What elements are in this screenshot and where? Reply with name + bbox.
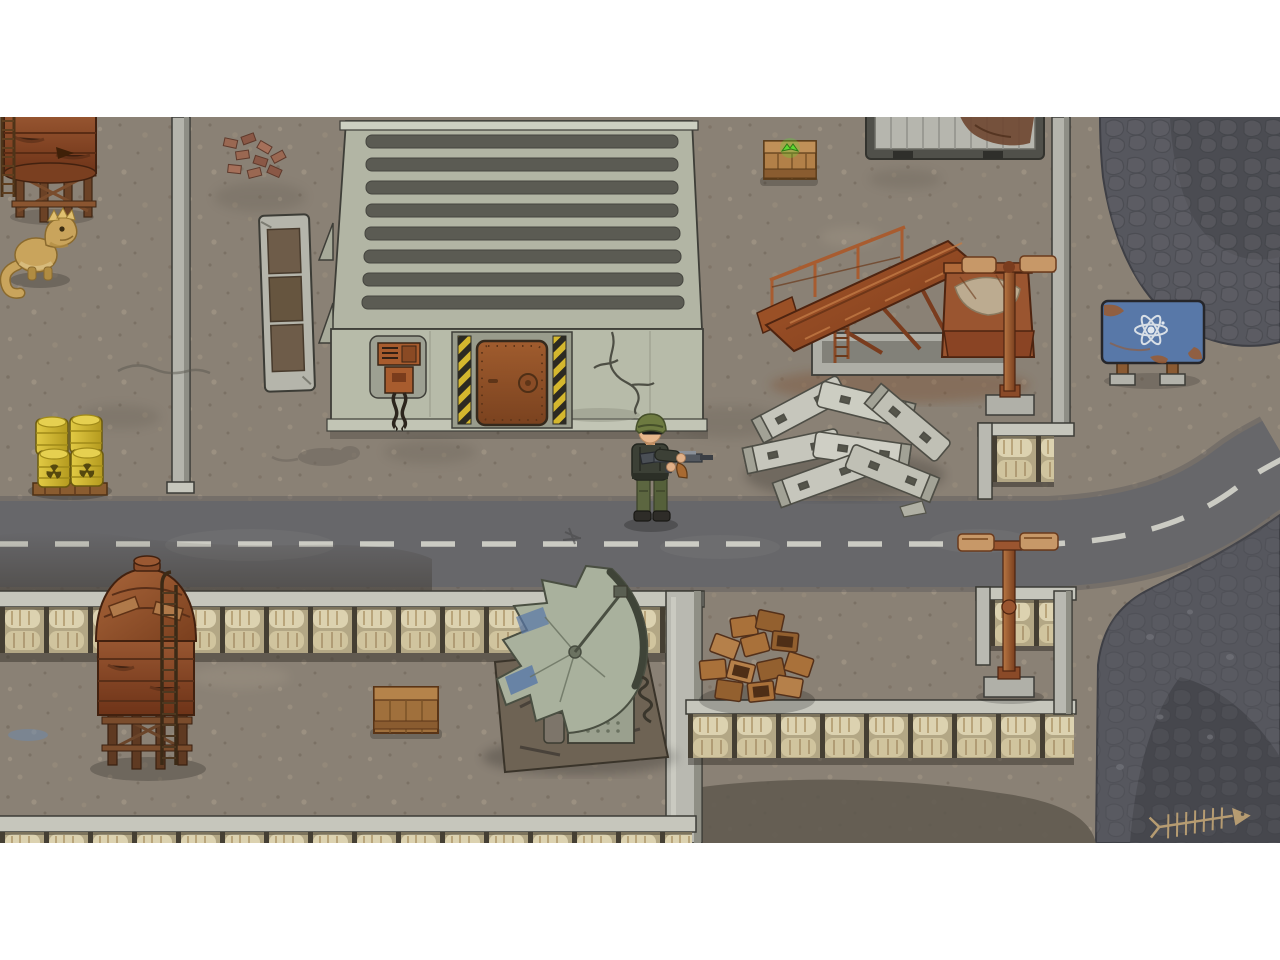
barrel (38, 449, 70, 487)
warehouse-door[interactable] (477, 341, 547, 425)
warehouse-building (319, 121, 708, 439)
hazard-stripe-right (553, 336, 566, 424)
hazard-stripe-left (458, 336, 471, 424)
letterbox-top (0, 0, 1280, 117)
barrel (71, 448, 103, 486)
game-window (0, 0, 1280, 960)
puddle (8, 729, 48, 741)
letterbox-bottom (0, 843, 1280, 960)
concrete-rack (259, 214, 315, 392)
wrecked-truck[interactable] (866, 117, 1044, 159)
game-viewport (0, 117, 1280, 843)
radioactive-barrels[interactable] (28, 415, 112, 500)
barrel (70, 415, 102, 453)
loot-crate[interactable] (760, 138, 818, 186)
wooden-crate[interactable] (370, 687, 442, 739)
tower-ladder (2, 117, 14, 197)
